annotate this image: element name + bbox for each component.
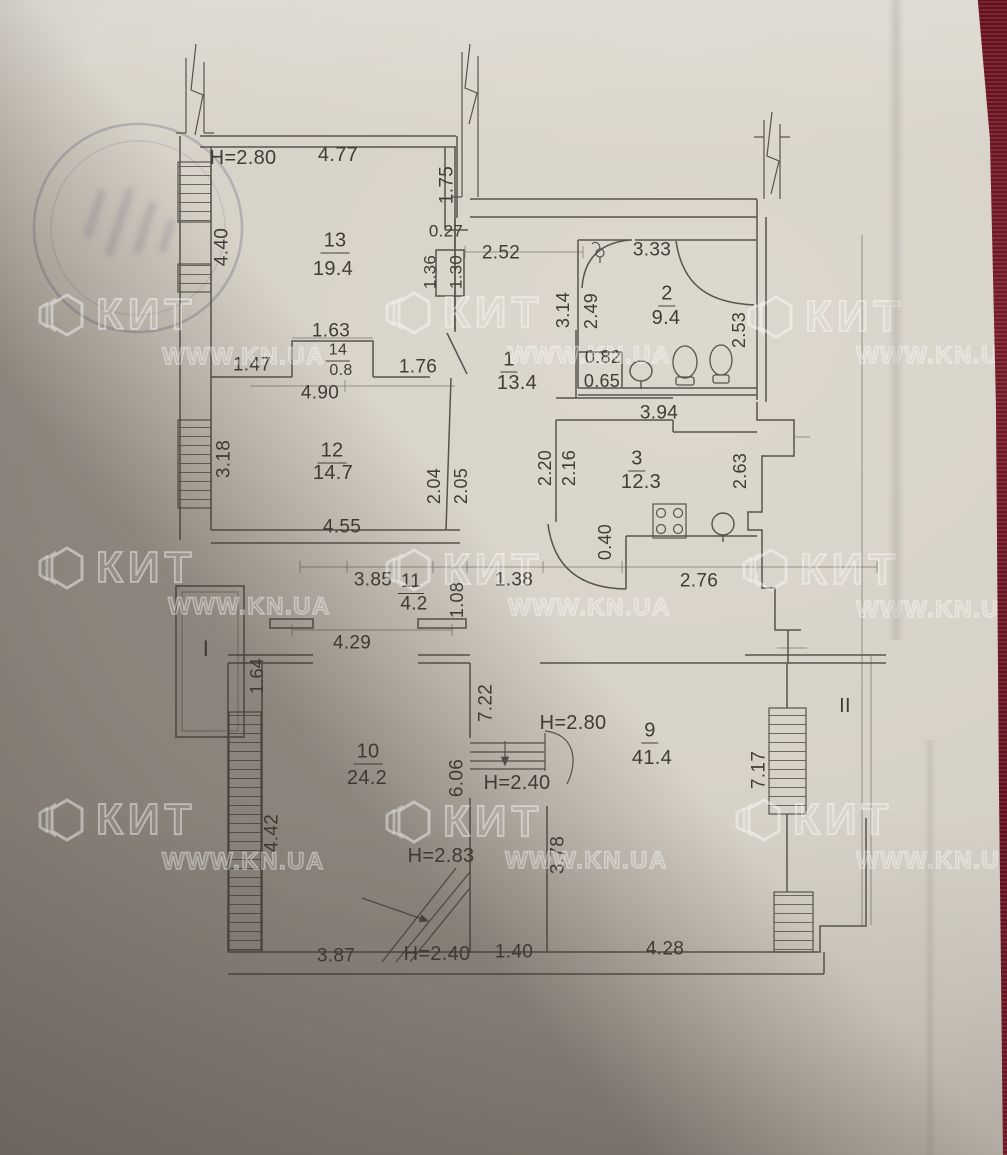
dimension-label: 4.42 (263, 814, 282, 852)
dimension-label: 0.40 (596, 524, 614, 560)
dimension-label: 7.17 (750, 751, 769, 789)
dimension-label: 1.40 (495, 943, 533, 962)
dimension-label: 1.36 (422, 255, 439, 289)
dimension-label: 2.49 (582, 293, 600, 329)
room-area-label: 24.2 (347, 768, 387, 788)
dimension-label: 4.77 (318, 145, 358, 165)
floor-plan-photo: H=2.804.771.754.401319.40.272.521.361.30… (0, 0, 1007, 1155)
dimension-label: 0.27 (429, 223, 463, 240)
toilet-icon (673, 346, 697, 385)
dimension-label: 2.16 (560, 450, 578, 486)
dimension-label: 3.18 (215, 440, 234, 478)
ceiling-height-label: H=2.80 (540, 713, 607, 733)
room-number-label: 12 (318, 441, 347, 464)
window-room10 (229, 712, 261, 950)
dimension-label: 2.05 (452, 468, 470, 504)
dimension-label: 2.04 (425, 468, 443, 504)
dimension-label: 3.78 (549, 836, 568, 874)
dimension-label: 1.08 (448, 582, 466, 618)
dimension-label: 3.94 (640, 404, 678, 423)
walls (176, 136, 886, 974)
room-area-label: 12.3 (621, 472, 661, 492)
dimension-label: 1.38 (495, 571, 533, 590)
dimension-label: 2.63 (731, 453, 749, 489)
bidet-icon (710, 345, 732, 383)
washbasin-icon (630, 361, 652, 389)
dimension-label: 1.63 (312, 322, 350, 341)
ceiling-height-label: H=2.80 (210, 148, 277, 168)
ceiling-height-label: H=2.83 (408, 846, 475, 866)
dimension-label: 6.06 (448, 759, 467, 797)
window-room12 (178, 420, 211, 508)
ceiling-height-label: H=2.40 (484, 773, 551, 793)
room-number-label: 9 (641, 721, 658, 744)
dimension-label: 4.28 (646, 940, 684, 959)
dimension-label: 0.65 (584, 372, 620, 390)
room-area-label: 41.4 (632, 748, 672, 768)
dimension-label: 1.47 (233, 356, 271, 375)
room-number-label: 13 (321, 231, 350, 254)
balcony-number-label: I (203, 638, 209, 660)
dimension-label: 4.29 (333, 634, 371, 653)
room-number-label: 11 (398, 572, 424, 594)
room-area-label: 4.2 (400, 595, 427, 614)
kitchen-sink-icon (712, 513, 734, 542)
room-area-label: 14.7 (313, 463, 353, 483)
balcony-number-label: II (839, 696, 851, 716)
window-room9-upper (769, 708, 806, 814)
dimension-label: 2.53 (730, 312, 748, 348)
room-number-label: 14 (326, 343, 350, 362)
room-number-label: 1 (500, 350, 517, 373)
dimension-label: 2.76 (680, 572, 718, 591)
dimension-label: 1.76 (399, 358, 437, 377)
dimension-label: 3.14 (554, 292, 572, 328)
window-room13-upper (178, 162, 211, 222)
window-room9-lower (774, 892, 813, 952)
room-number-label: 10 (354, 742, 383, 765)
wall-break-symbols (176, 44, 790, 199)
room-number-label: 3 (628, 449, 645, 472)
dimension-label: 4.55 (323, 518, 361, 537)
dimension-label: 1.30 (448, 255, 465, 289)
room-area-label: 13.4 (497, 373, 537, 393)
dimension-label: 1.75 (438, 166, 457, 204)
stove-icon (653, 504, 686, 538)
dimension-label: 7.22 (477, 684, 496, 722)
dimension-label: 0.82 (585, 348, 621, 366)
room-area-label: 9.4 (652, 308, 681, 328)
room-number-label: 2 (658, 284, 675, 307)
dimension-label: 3.87 (317, 947, 355, 966)
dimension-label: 2.20 (536, 450, 554, 486)
dimension-label: 3.85 (354, 571, 392, 590)
dimension-label: 1.64 (248, 658, 266, 694)
window-room13-lower (178, 264, 211, 292)
ceiling-height-label: H=2.40 (404, 944, 471, 964)
dimension-label: 4.40 (213, 228, 232, 266)
dimension-label: 2.52 (482, 244, 520, 263)
dimension-label: 4.90 (301, 384, 339, 403)
dimension-label: 3.33 (633, 241, 671, 260)
room-area-label: 19.4 (313, 259, 353, 279)
room-area-label: 0.8 (329, 363, 352, 379)
